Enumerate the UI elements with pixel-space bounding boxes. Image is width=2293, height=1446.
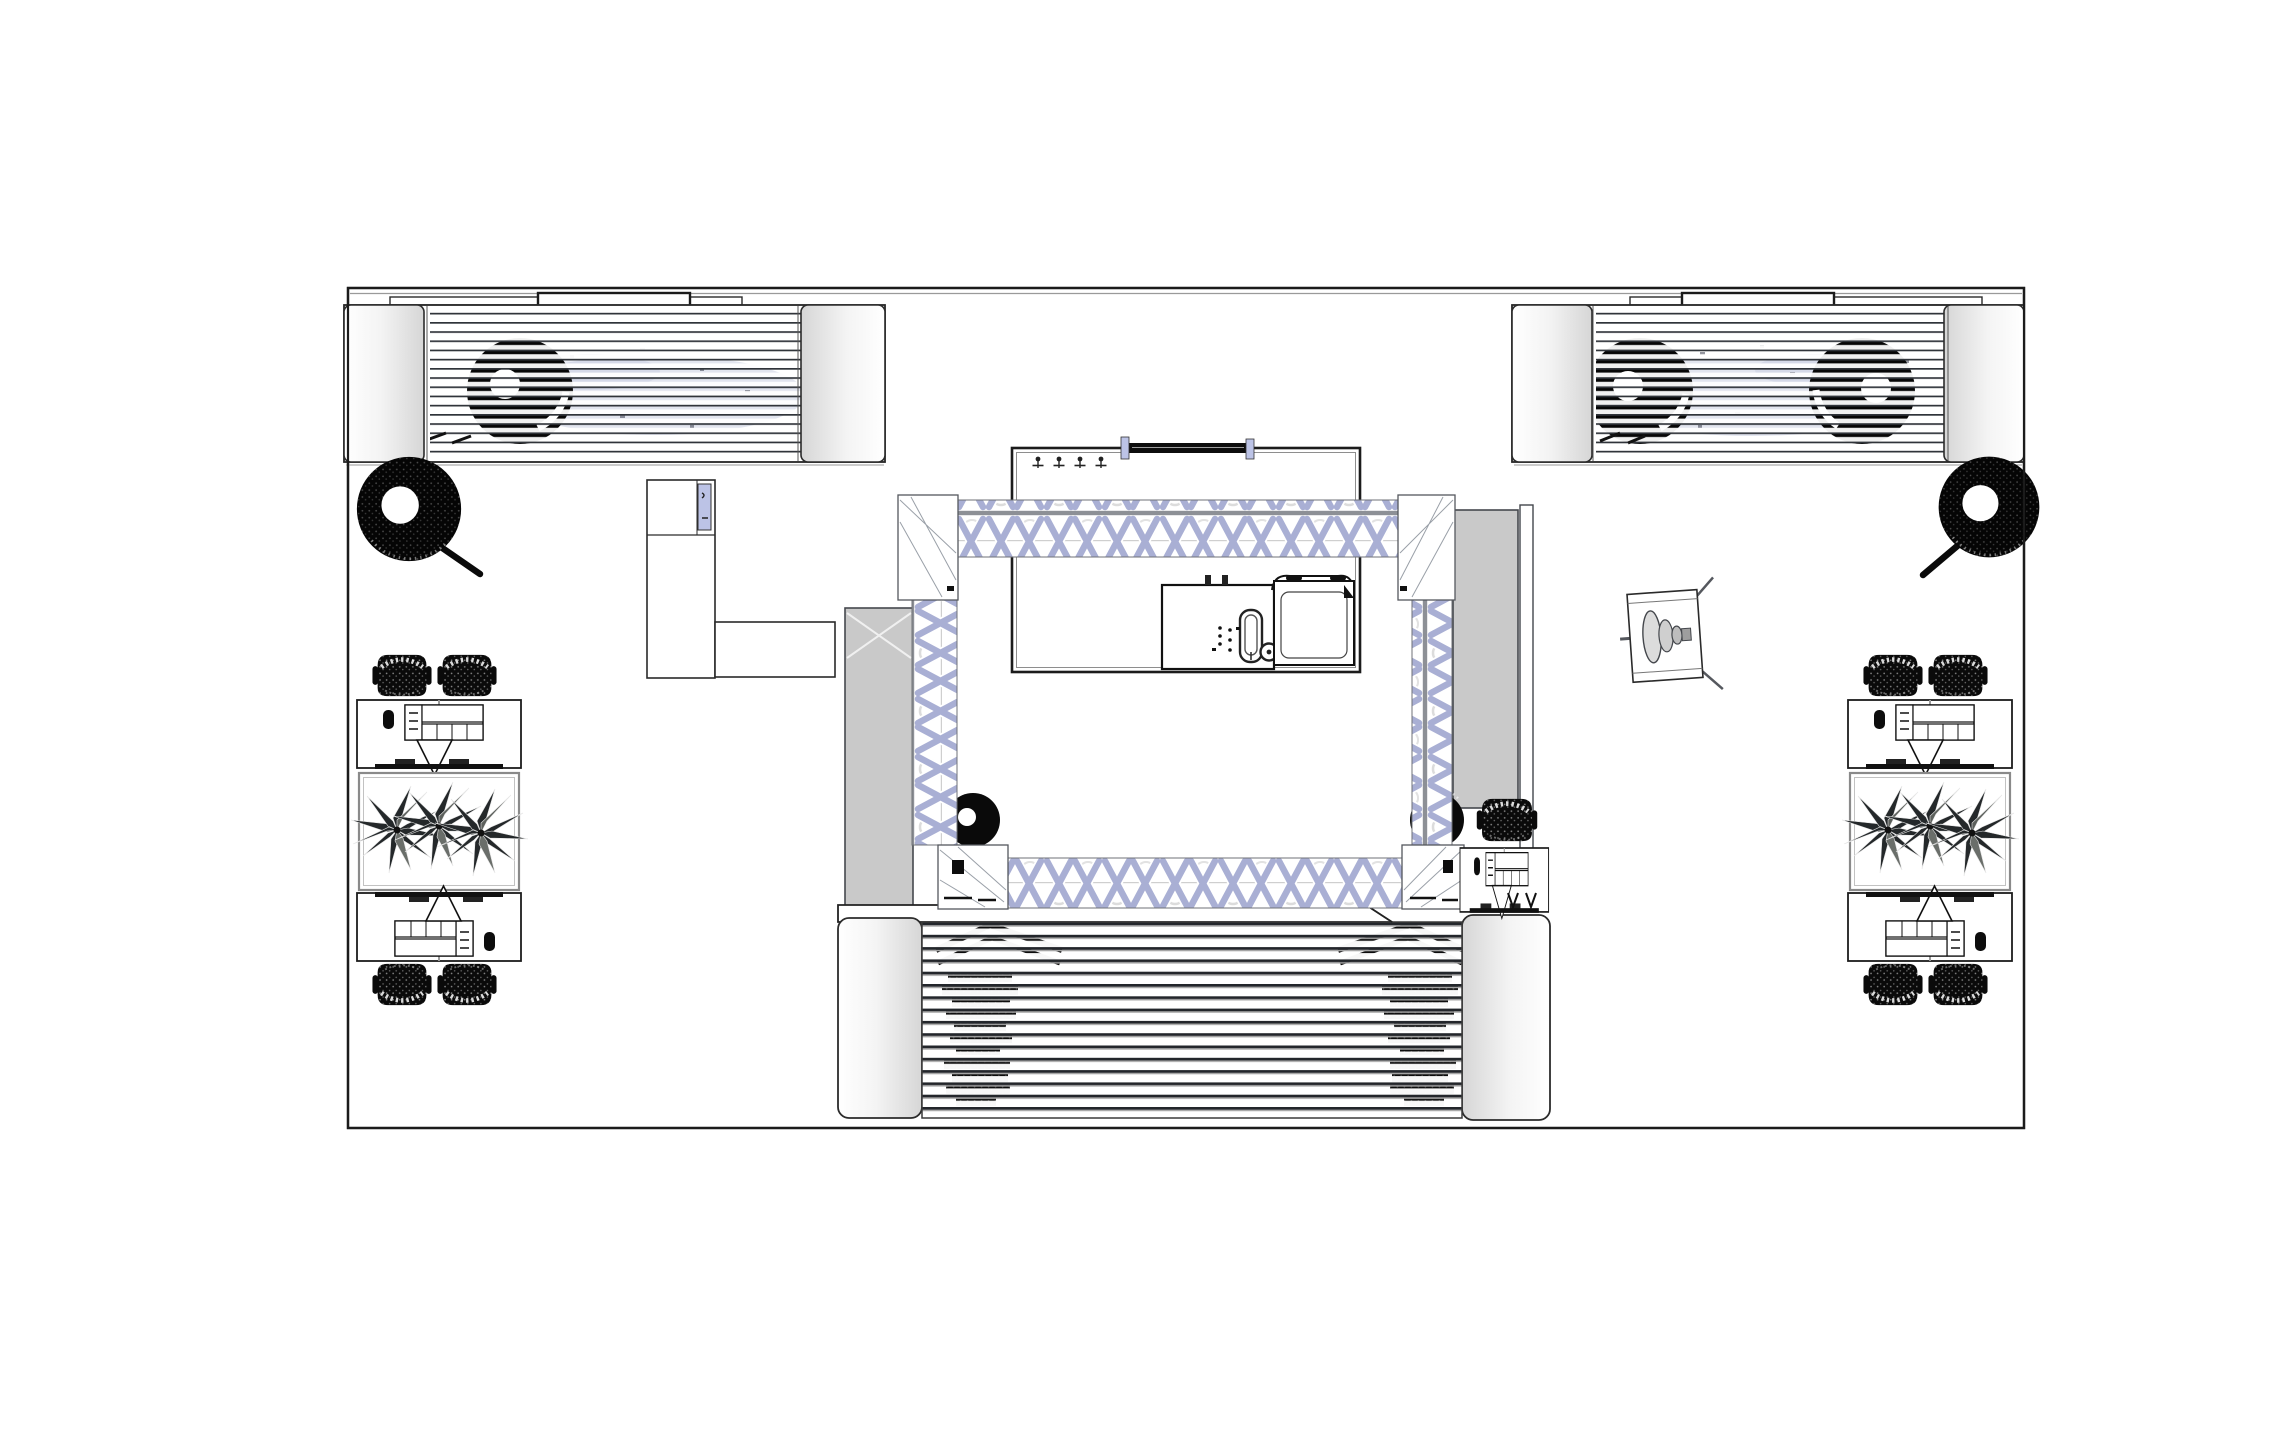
- canopy-right-content: [1587, 307, 1944, 460]
- truss-top-beam: [955, 500, 1410, 557]
- canopy-end-cap: [1944, 305, 2024, 462]
- wall-panel-left: [845, 608, 913, 908]
- truss-corner-top-left: [898, 495, 958, 600]
- partition-wall-right: [1520, 505, 1533, 907]
- table-group-right: [1842, 655, 2019, 1005]
- stage-column-right: [1462, 915, 1550, 1120]
- truss-corner-top-right: [1398, 495, 1455, 600]
- floor-plan-drawing: [0, 0, 2293, 1446]
- truss-corner-bottom-left: [938, 845, 1008, 909]
- truss-corner-bottom-right: [1402, 845, 1464, 909]
- stage-louver: [838, 905, 1550, 1120]
- canopy-end-cap: [1512, 305, 1592, 462]
- canopy-louver-slats: [1596, 307, 1944, 460]
- canopy-louver-slats: [430, 307, 801, 460]
- canopy-end-cap: [801, 305, 885, 462]
- canopy-end-cap: [344, 305, 424, 462]
- clamp-icon: [1246, 439, 1254, 459]
- wall-panel-right: [1453, 510, 1518, 808]
- truss-right-column: [1412, 600, 1452, 845]
- desk: [1460, 848, 1549, 919]
- stage-column-left: [838, 918, 922, 1118]
- tire-icon: [357, 457, 461, 561]
- truss-left-column: [912, 597, 957, 845]
- drawing-canvas: [0, 0, 2293, 1446]
- chair: [1477, 799, 1537, 841]
- clamp-icon: [1121, 437, 1129, 459]
- counter-hatch: [698, 484, 711, 530]
- canopy-right: [1512, 293, 2024, 465]
- canopy-left: [344, 293, 885, 465]
- stage-louver-slats: [922, 922, 1462, 1118]
- appliance: [1272, 575, 1354, 665]
- canopy-left-content: [424, 307, 805, 460]
- table-group-left: [351, 655, 528, 1005]
- counter-arm: [715, 622, 835, 677]
- truss-bottom-beam: [1008, 858, 1408, 908]
- kitchen-counter: [1162, 575, 1278, 669]
